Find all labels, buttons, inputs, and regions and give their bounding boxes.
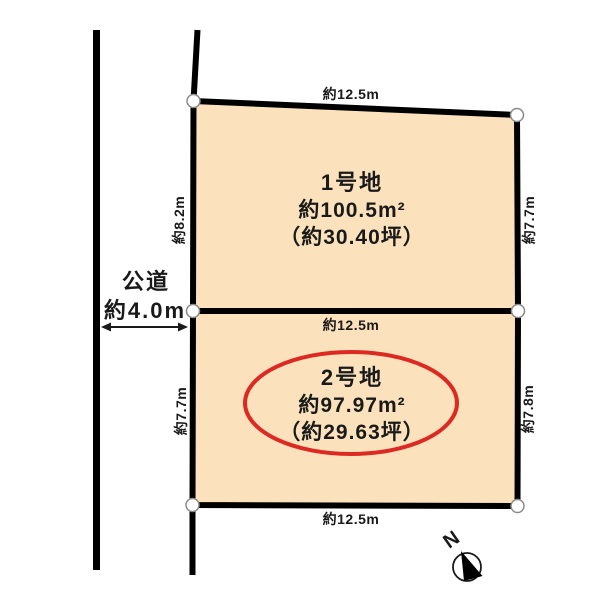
boundary-line-upper-extension — [194, 30, 198, 101]
road-width-label: 約4.0m — [104, 298, 186, 323]
lot-1-right-dimension: 約7.7m — [521, 196, 537, 244]
corner-dot-middle-left — [187, 305, 200, 318]
lot-2-area-sqm: 約97.97m² — [298, 393, 405, 417]
north-needle-icon — [461, 551, 483, 581]
arrowhead-right — [178, 323, 188, 332]
north-label: N — [439, 527, 463, 553]
lot-2-bottom-dimension: 約12.5m — [323, 511, 380, 527]
lot-2-left-dimension: 約7.7m — [173, 387, 189, 435]
lot-2-right-dimension: 約7.8m — [520, 385, 536, 433]
lot-2-top-dimension: 約12.5m — [323, 317, 380, 333]
corner-dot-top-left — [187, 95, 200, 108]
compass: N — [439, 527, 482, 581]
lot-1-area-tsubo: （約30.40坪） — [279, 225, 425, 249]
corner-dot-bottom-right — [511, 500, 524, 513]
road-width-arrow — [101, 323, 188, 332]
road-name-label: 公道 — [122, 269, 170, 294]
lot-layout-diagram: 公道 約4.0m 1号地 約100.5m² （約30.40坪） 2号地 約97.… — [0, 0, 600, 600]
corner-dot-top-right — [511, 109, 524, 122]
lot-2-name: 2号地 — [321, 365, 383, 390]
lot-1-top-dimension: 約12.5m — [323, 86, 380, 102]
arrowhead-left — [101, 323, 111, 332]
lot-1-area-sqm: 約100.5m² — [298, 198, 405, 222]
lot-1-name: 1号地 — [321, 170, 383, 195]
lot-2-area-tsubo: （約29.63坪） — [279, 420, 425, 444]
corner-dot-bottom-left — [186, 499, 199, 512]
corner-dot-middle-right — [512, 305, 525, 318]
lot-layout-svg: 公道 約4.0m 1号地 約100.5m² （約30.40坪） 2号地 約97.… — [0, 0, 600, 600]
lot-1-left-dimension: 約8.2m — [171, 196, 187, 244]
